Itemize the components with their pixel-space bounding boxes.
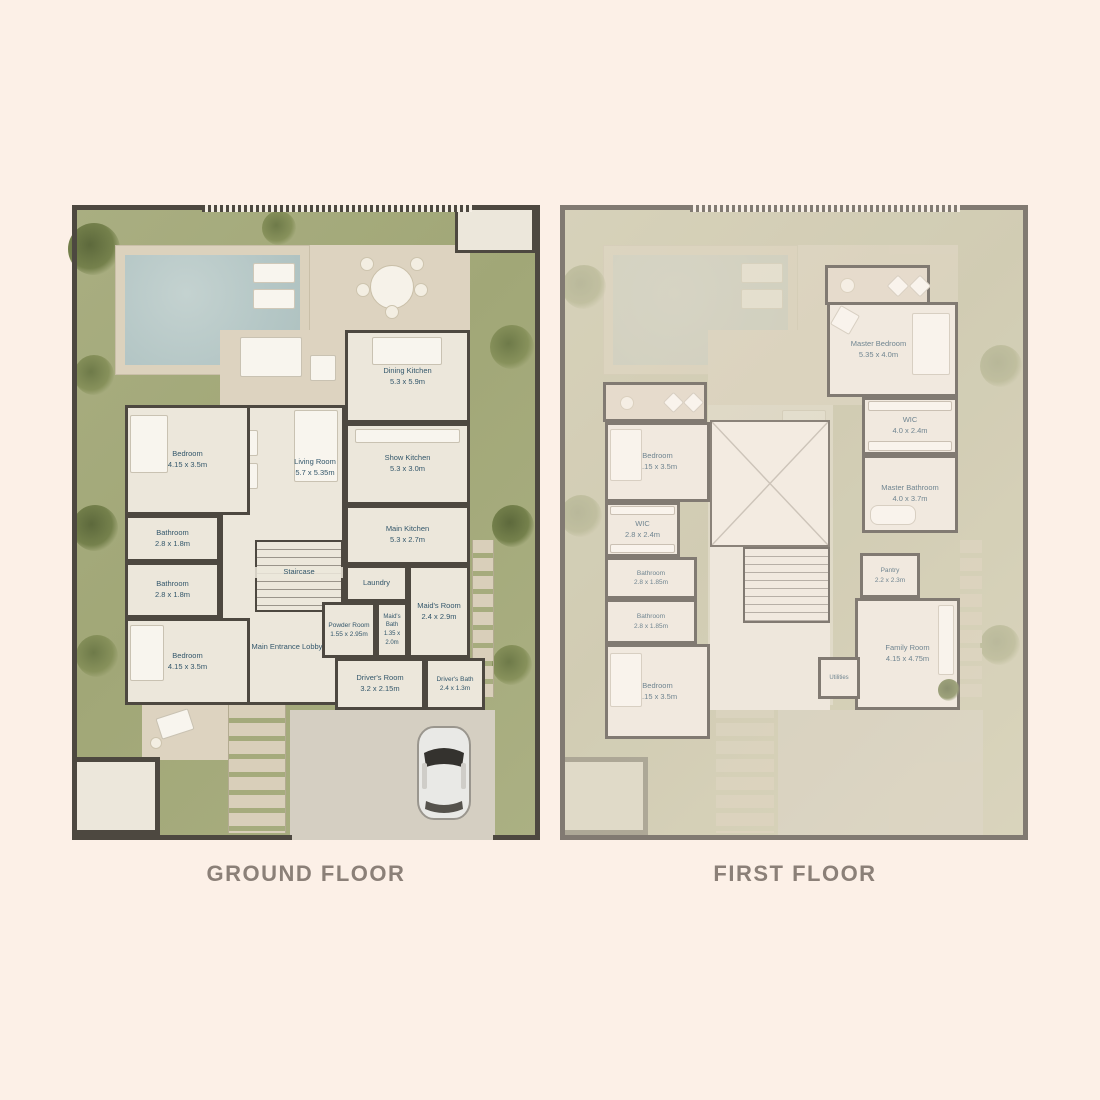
room-label: Family Room	[885, 643, 929, 654]
master-balcony	[825, 265, 930, 305]
room-dims: 2.8 x 1.85m	[634, 578, 668, 587]
room-dims: 5.3 x 5.9m	[383, 377, 431, 388]
room-dims: 4.15 x 3.5m	[168, 460, 207, 471]
bush-icon	[490, 325, 534, 369]
chair-icon	[620, 396, 634, 410]
first-floor-title: FIRST FLOOR	[560, 861, 1030, 887]
room-laundry: Laundry	[345, 565, 408, 602]
room-label: Maid's Bath	[379, 613, 405, 630]
outdoor-sofa-icon	[240, 337, 302, 377]
cushion-icon	[909, 275, 932, 298]
room-pantry: Pantry2.2 x 2.3m	[860, 553, 920, 598]
room-label: Laundry	[363, 578, 390, 589]
room-dims: 5.3 x 2.7m	[386, 535, 429, 546]
ground-floor-plan: Dining Kitchen5.3 x 5.9m Show Kitchen5.3…	[72, 205, 540, 840]
boundary-fence-hatch	[202, 205, 472, 212]
kitchen-counter-icon	[355, 429, 460, 443]
cushion-icon	[663, 392, 684, 413]
room-dims: 1.55 x 2.95m	[328, 630, 369, 639]
staircase	[743, 547, 830, 623]
room-label: Bathroom	[634, 569, 668, 578]
tree-icon	[72, 505, 118, 551]
bed-icon	[912, 313, 950, 375]
room-label: Utilities	[829, 674, 848, 683]
bush-icon	[262, 211, 296, 245]
room-label: Bathroom	[155, 528, 190, 539]
room-label: Bathroom	[634, 612, 668, 621]
room-label: Pantry	[875, 566, 905, 575]
room-label: Bedroom	[638, 451, 677, 462]
bathtub-icon	[870, 505, 916, 525]
room-dims: 5.7 x 5.35m	[255, 468, 375, 479]
sofa-icon	[938, 605, 954, 675]
double-height-void	[710, 420, 830, 547]
room-label: Powder Room	[328, 621, 369, 630]
room-dims: 2.8 x 2.4m	[625, 530, 660, 541]
cushion-icon	[683, 392, 704, 413]
void-cross-icon	[712, 422, 828, 545]
room-dims: 4.0 x 3.7m	[881, 494, 939, 505]
room-bathroom-4: Bathroom2.8 x 1.85m	[605, 599, 697, 644]
room-label: Bedroom	[168, 449, 207, 460]
entry-gate-block	[72, 757, 160, 835]
outdoor-dining-table-icon	[370, 265, 414, 309]
dining-table-icon	[372, 337, 442, 365]
bush-icon	[492, 645, 532, 685]
room-label: Bathroom	[155, 579, 190, 590]
chair-icon	[360, 257, 374, 271]
room-dims: 2.8 x 1.85m	[634, 622, 668, 631]
room-bathroom-3: Bathroom2.8 x 1.85m	[605, 557, 697, 599]
floorplan-sheet: Dining Kitchen5.3 x 5.9m Show Kitchen5.3…	[0, 0, 1100, 1100]
bush-icon	[74, 355, 114, 395]
room-label: Bedroom	[168, 651, 207, 662]
tree-icon	[492, 505, 534, 547]
room-label: Maid's Room	[417, 601, 461, 612]
room-label: WIC	[892, 415, 927, 426]
boundary-fence-hatch	[690, 205, 960, 212]
room-dims: 3.2 x 2.15m	[356, 684, 403, 695]
bed-icon	[610, 653, 642, 707]
chair-icon	[414, 283, 428, 297]
room-dims: 4.15 x 3.5m	[638, 692, 677, 703]
pool-lounger-icon	[253, 289, 295, 309]
chair-icon	[410, 257, 424, 271]
room-label: Dining Kitchen	[383, 366, 431, 377]
first-floor-plan: Master Bedroom5.35 x 4.0m WIC4.0 x 2.4m …	[560, 205, 1028, 840]
room-staircase: Staircase	[255, 567, 343, 578]
stepping-stone-path	[228, 705, 286, 833]
chair-icon	[150, 737, 162, 749]
room-label: Main Kitchen	[386, 524, 429, 535]
room-label: Main Entrance Lobby	[227, 642, 347, 653]
bedroom-balcony	[603, 382, 707, 422]
bush-icon	[76, 635, 118, 677]
room-dims: 2.4 x 2.9m	[417, 612, 461, 623]
ground-floor-title: GROUND FLOOR	[72, 861, 540, 887]
plant-icon	[938, 679, 960, 701]
room-living: Living Room 5.7 x 5.35m	[255, 457, 375, 479]
room-label: Master Bedroom	[851, 339, 906, 350]
driveway-opening	[292, 831, 493, 840]
pool-lounger-icon	[253, 263, 295, 283]
room-drivers-bath: Driver's Bath2.4 x 1.3m	[425, 658, 485, 710]
entry-block	[455, 205, 535, 253]
room-bathroom-2: Bathroom2.8 x 1.8m	[125, 562, 220, 618]
room-dims: 2.8 x 1.8m	[155, 590, 190, 601]
wardrobe-icon	[868, 441, 952, 451]
room-dims: 1.35 x 2.0m	[379, 630, 405, 647]
room-dims: 2.4 x 1.3m	[436, 684, 473, 693]
room-dims: 4.15 x 3.5m	[168, 662, 207, 673]
room-dims: 4.15 x 4.75m	[885, 654, 929, 665]
car-icon	[412, 723, 476, 823]
room-label: Driver's Room	[356, 673, 403, 684]
bed-icon	[130, 625, 164, 681]
room-label: Driver's Bath	[436, 675, 473, 684]
room-main-kitchen: Main Kitchen5.3 x 2.7m	[345, 505, 470, 565]
bed-icon	[130, 415, 168, 473]
room-lobby: Main Entrance Lobby	[227, 642, 347, 653]
tree-icon	[68, 223, 120, 275]
room-maids-bath: Maid's Bath1.35 x 2.0m	[376, 602, 408, 658]
room-dims: 5.3 x 3.0m	[385, 464, 431, 475]
chair-icon	[385, 305, 399, 319]
room-dims: 2.2 x 2.3m	[875, 576, 905, 585]
wardrobe-icon	[610, 544, 675, 553]
room-label: Show Kitchen	[385, 453, 431, 464]
room-utilities: Utilities	[818, 657, 860, 699]
room-label: Master Bathroom	[881, 483, 939, 494]
chair-icon	[840, 278, 855, 293]
wardrobe-icon	[868, 401, 952, 411]
bed-icon	[610, 429, 642, 481]
room-label: Bedroom	[638, 681, 677, 692]
outdoor-chair-icon	[310, 355, 336, 381]
room-dims: 4.0 x 2.4m	[892, 426, 927, 437]
room-bathroom-1: Bathroom2.8 x 1.8m	[125, 515, 220, 562]
chair-icon	[356, 283, 370, 297]
room-drivers-room: Driver's Room3.2 x 2.15m	[335, 658, 425, 710]
room-label: Living Room	[255, 457, 375, 468]
room-label: Staircase	[255, 567, 343, 578]
room-maids-room: Maid's Room2.4 x 2.9m	[408, 565, 470, 658]
wardrobe-icon	[610, 506, 675, 515]
room-label: WIC	[625, 519, 660, 530]
cushion-icon	[887, 275, 910, 298]
room-dims: 2.8 x 1.8m	[155, 539, 190, 550]
room-dims: 4.15 x 3.5m	[638, 462, 677, 473]
room-dims: 5.35 x 4.0m	[851, 350, 906, 361]
